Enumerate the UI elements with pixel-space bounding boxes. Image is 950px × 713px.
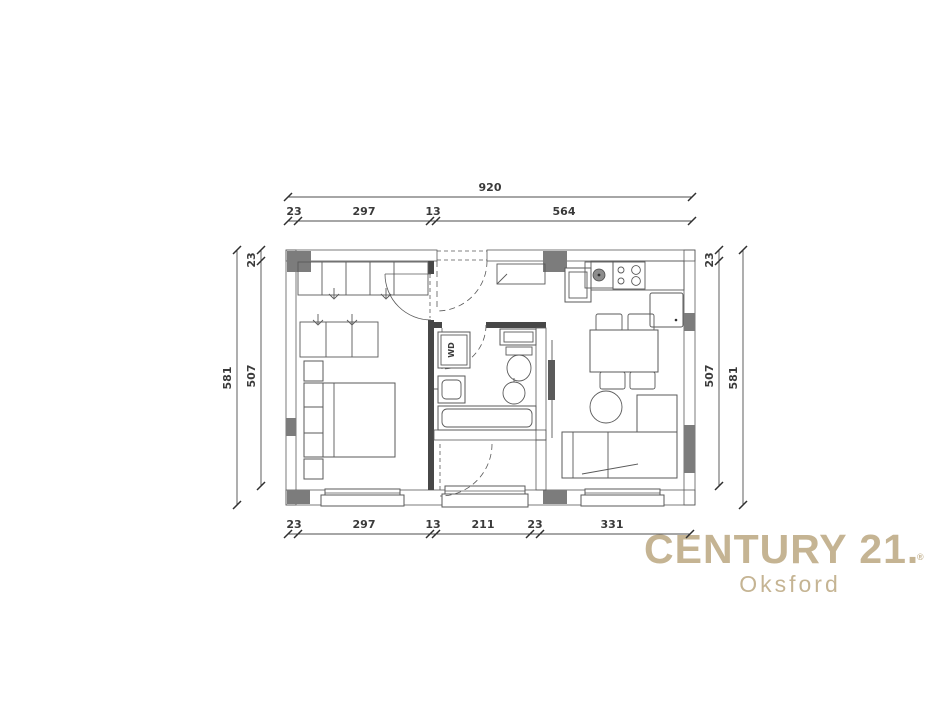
bathroom-fixtures: WD: [434, 329, 536, 430]
wall-bath-top-a: [434, 322, 442, 328]
tv-wall: [548, 340, 555, 438]
wall-bottom-4: [660, 490, 695, 505]
wardrobe-top: [298, 262, 428, 299]
dining-set: [590, 314, 658, 389]
brand-logo: CENTURY 21. ® Oksford: [644, 526, 924, 597]
burner-icon: [618, 278, 624, 284]
dim-top-23: 23: [286, 205, 301, 218]
nightstand: [304, 361, 323, 381]
dimension-right-outer: 581: [727, 246, 747, 509]
bedroom-door: [385, 274, 431, 320]
bedroom-furniture: [298, 262, 428, 479]
dim-top-13: 13: [425, 205, 440, 218]
wall-bedroom-main: [428, 320, 434, 490]
dimension-left-inner: 23 507: [245, 246, 265, 490]
headboard: [304, 383, 323, 457]
column-top-middle: [543, 251, 567, 272]
dining-table: [590, 330, 658, 372]
wall-bath-bottom: [434, 430, 546, 440]
column-bottom-left: [287, 490, 310, 504]
windows: [321, 486, 664, 507]
tv-icon: [548, 360, 555, 400]
wall-bath-right: [536, 328, 546, 440]
column-right-lower: [684, 425, 695, 473]
office-name: Oksford: [739, 571, 841, 597]
chair: [630, 372, 655, 389]
coffee-table: [590, 391, 622, 423]
wall-bedroom-top: [428, 261, 434, 274]
kitchen-counter: [585, 261, 684, 290]
brand-name: CENTURY 21.: [644, 526, 919, 572]
nightstand: [304, 459, 323, 479]
floor-plan-page: CENTURY 21. ® Oksford: [0, 0, 950, 713]
dim-left-507: 507: [245, 365, 258, 388]
wall-bottom-2: [400, 490, 445, 505]
column-right-upper: [684, 313, 695, 331]
living-dining-furniture: [548, 314, 677, 478]
wall-bath-top-b: [486, 322, 546, 328]
dim-bot-297: 297: [353, 518, 376, 531]
dim-top-564: 564: [553, 205, 576, 218]
dim-top-297: 297: [353, 205, 376, 218]
kitchen-tall-cabinet: [565, 268, 591, 302]
hall-kitchen: [497, 261, 684, 327]
washer-dryer-label: WD: [447, 342, 456, 358]
burner-icon: [618, 267, 624, 273]
wardrobe-second: [300, 314, 378, 357]
dimension-bottom-segments: 23 297 13 211 23 331: [284, 518, 694, 538]
bath-cabinet: [500, 329, 536, 345]
window-middle-room: [442, 486, 528, 507]
wall-left: [286, 250, 296, 505]
burner-icon: [632, 277, 641, 286]
corner-sofa: [562, 395, 677, 478]
dim-920: 920: [479, 181, 502, 194]
chair: [596, 314, 622, 331]
hob-unit: [613, 262, 645, 289]
hanger-icon: [329, 288, 339, 299]
bathtub: [438, 406, 536, 430]
column-top-left: [287, 251, 311, 272]
bathroom-sink: [434, 376, 465, 403]
bed: [304, 361, 395, 479]
dim-bot-13: 13: [425, 518, 440, 531]
dim-bot-211: 211: [472, 518, 495, 531]
dimension-top-segments: 23 297 13 564: [284, 205, 696, 225]
window-bedroom: [321, 489, 404, 506]
hanger-icon: [347, 314, 357, 325]
fridge: [650, 293, 683, 327]
burner-icon: [632, 266, 641, 275]
dim-right-581: 581: [727, 367, 740, 390]
window-living-room: [581, 489, 664, 506]
wall-top-right: [487, 250, 695, 261]
sink-drain-icon: [598, 274, 601, 277]
column-bottom-middle: [543, 490, 567, 504]
dimension-top-total: 920: [284, 181, 696, 201]
dim-right-507: 507: [703, 365, 716, 388]
dimension-right-inner: 23 507: [703, 246, 723, 490]
registered-mark: ®: [917, 552, 924, 562]
dim-bot-23a: 23: [286, 518, 301, 531]
hall-closet: [497, 264, 545, 284]
dim-right-23: 23: [703, 252, 716, 267]
dim-left-581: 581: [221, 367, 234, 390]
hanger-icon: [313, 314, 323, 325]
entrance-door: [437, 261, 487, 311]
bidet: [503, 378, 525, 404]
chair: [600, 372, 625, 389]
dim-left-23: 23: [245, 252, 258, 267]
wall-small-room-right: [536, 440, 546, 490]
dimension-left-outer: 581: [221, 246, 241, 509]
toilet: [506, 347, 532, 381]
dim-bot-331: 331: [601, 518, 624, 531]
floor-plan-drawing: CENTURY 21. ® Oksford: [0, 0, 950, 713]
dim-bot-23b: 23: [527, 518, 542, 531]
washer-dryer: WD: [438, 332, 470, 368]
column-left-lower: [286, 418, 296, 436]
